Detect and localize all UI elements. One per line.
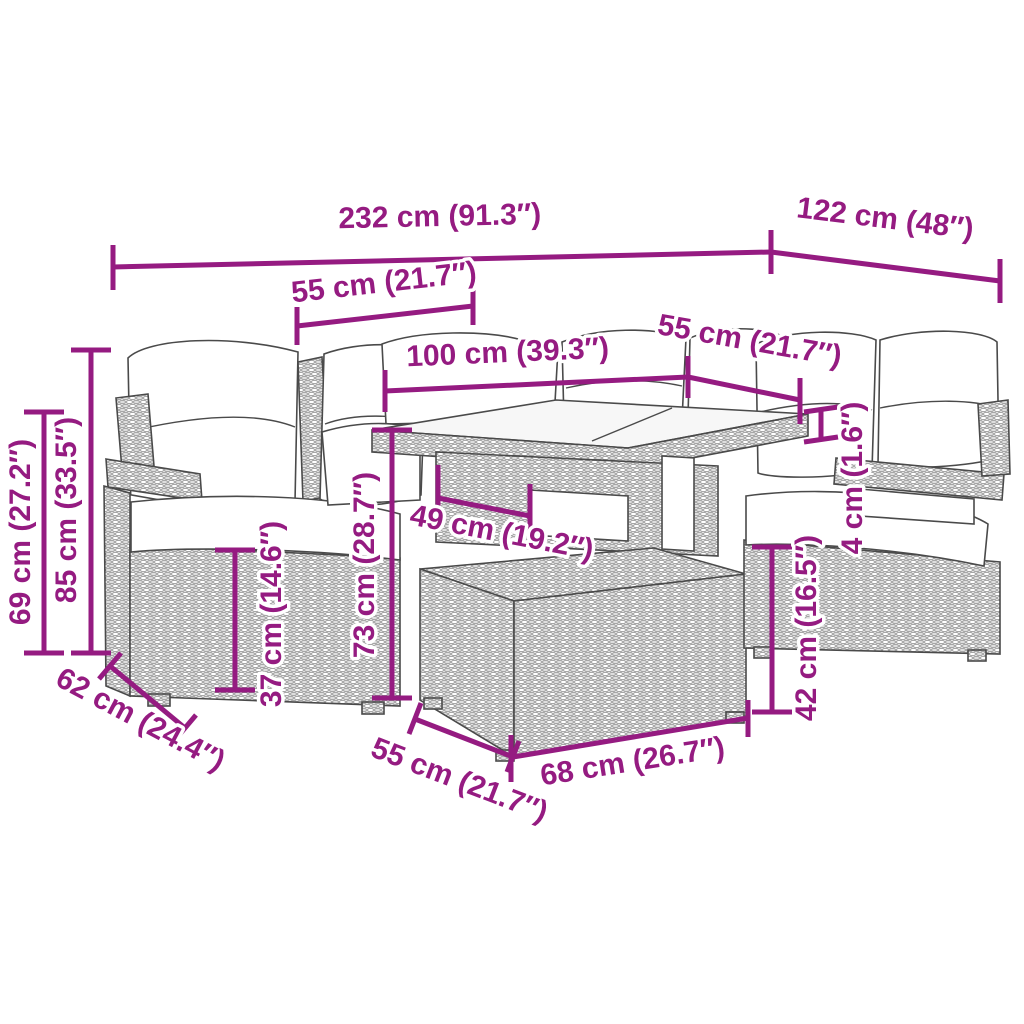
dim-label-backrest-height: 69 cm (27.2″) (4, 439, 37, 625)
foot (424, 698, 442, 709)
ottoman (420, 548, 746, 761)
left-arm-post (116, 394, 154, 470)
foot (362, 702, 384, 714)
foot (754, 647, 772, 658)
pedestal-slot (662, 456, 694, 551)
dim-label-seat-height: 37 cm (14.6″) (255, 521, 288, 707)
left-arm-side (104, 486, 130, 696)
dim-label-overall-width: 232 cm (91.3″) (338, 198, 542, 236)
dim-label-tabletop-thickness: 4 cm (1.6″) (836, 402, 869, 555)
dim-label-table-height: 73 cm (28.7″) (348, 472, 381, 658)
dim-label-overall-depth: 122 cm (48″) (795, 191, 976, 245)
dim-left-seat-width: 55 cm (21.7″) (290, 256, 479, 345)
foot (968, 650, 986, 661)
dim-label-total-height: 85 cm (33.5″) (50, 417, 83, 603)
dimension-diagram: 232 cm (91.3″) 122 cm (48″) 55 cm (21.7″… (0, 0, 1024, 1024)
right-arm-post (978, 400, 1010, 476)
diagram-canvas: 232 cm (91.3″) 122 cm (48″) 55 cm (21.7″… (0, 0, 1024, 1024)
dim-total-height: 85 cm (33.5″) (50, 350, 111, 653)
dim-label-ottoman-height: 42 cm (16.5″) (790, 535, 823, 721)
ottoman-front-right (514, 574, 746, 757)
dim-overall-depth: 122 cm (48″) (771, 191, 1000, 303)
